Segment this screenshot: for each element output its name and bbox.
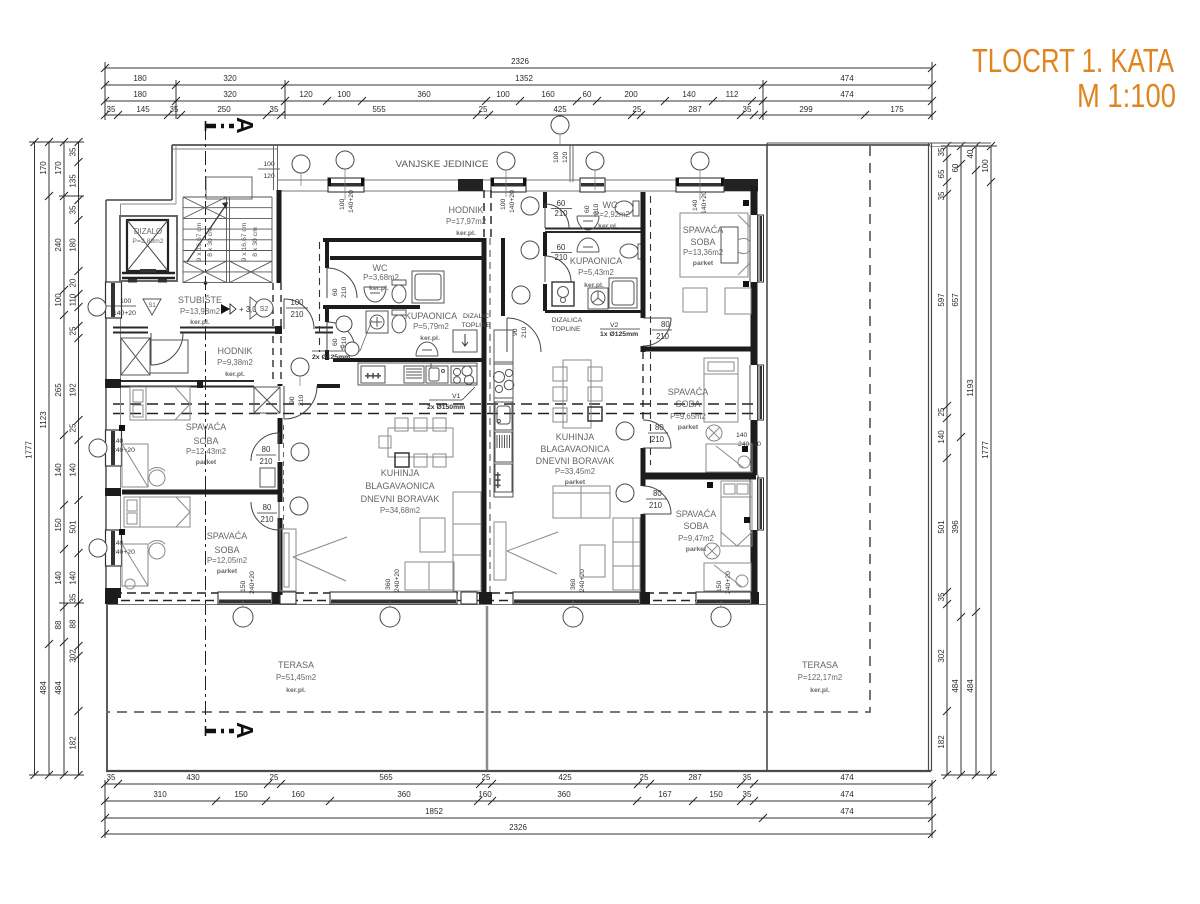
svg-text:35: 35 [69, 593, 78, 602]
svg-text:140: 140 [54, 571, 63, 585]
svg-text:ker.pl.: ker.pl. [598, 223, 618, 230]
svg-text:25: 25 [482, 773, 491, 782]
svg-text:360: 360 [557, 790, 571, 799]
svg-text:484: 484 [966, 679, 975, 693]
svg-text:150: 150 [716, 580, 723, 592]
svg-text:P=5,79m2: P=5,79m2 [413, 322, 449, 331]
svg-text:25: 25 [270, 773, 279, 782]
svg-text:180: 180 [133, 90, 147, 99]
svg-text:100: 100 [496, 90, 510, 99]
svg-text:P=13,36m2: P=13,36m2 [683, 248, 723, 257]
svg-text:425: 425 [558, 773, 572, 782]
svg-text:484: 484 [951, 679, 960, 693]
svg-text:9 x 16,67 cm: 9 x 16,67 cm [241, 222, 248, 261]
svg-text:200: 200 [624, 90, 638, 99]
svg-text:250: 250 [217, 105, 231, 114]
svg-text:S2: S2 [260, 306, 269, 313]
svg-text:210: 210 [649, 501, 663, 510]
svg-text:SPAVAĆA: SPAVAĆA [683, 225, 724, 235]
svg-text:88: 88 [69, 619, 78, 628]
svg-text:parket: parket [196, 459, 217, 466]
svg-text:150: 150 [54, 518, 63, 532]
svg-text:80: 80 [653, 489, 662, 498]
svg-text:25: 25 [633, 105, 642, 114]
svg-text:120: 120 [299, 90, 313, 99]
svg-text:P=34,68m2: P=34,68m2 [380, 506, 420, 515]
svg-text:60: 60 [951, 163, 960, 172]
svg-text:150: 150 [234, 790, 248, 799]
svg-text:SPAVAĆA: SPAVAĆA [207, 531, 248, 541]
svg-text:287: 287 [688, 105, 702, 114]
svg-text:TERASA: TERASA [278, 660, 314, 670]
svg-text:160: 160 [291, 790, 305, 799]
svg-text:80: 80 [262, 445, 271, 454]
svg-text:140: 140 [692, 199, 699, 211]
svg-text:25: 25 [937, 407, 946, 416]
svg-text:100: 100 [339, 198, 346, 210]
svg-text:40: 40 [966, 149, 975, 158]
svg-text:167: 167 [658, 790, 672, 799]
svg-text:TLOCRT 1. KATA: TLOCRT 1. KATA [972, 42, 1174, 79]
svg-text:P=5,43m2: P=5,43m2 [578, 268, 614, 277]
svg-text:287: 287 [688, 773, 702, 782]
svg-text:192: 192 [69, 383, 78, 397]
svg-text:501: 501 [937, 520, 946, 534]
svg-text:TOPLINE: TOPLINE [462, 322, 491, 329]
svg-text:140: 140 [736, 432, 748, 439]
svg-text:360: 360 [397, 790, 411, 799]
svg-text:1777: 1777 [981, 441, 990, 459]
svg-text:parket: parket [693, 260, 714, 267]
svg-text:140: 140 [937, 430, 946, 444]
svg-text:170: 170 [54, 161, 63, 175]
svg-text:140: 140 [682, 90, 696, 99]
svg-text:35: 35 [743, 773, 752, 782]
svg-text:474: 474 [840, 807, 854, 816]
svg-text:474: 474 [840, 773, 854, 782]
svg-text:320: 320 [223, 74, 237, 83]
svg-text:1352: 1352 [515, 74, 533, 83]
svg-text:100: 100 [553, 151, 560, 163]
svg-text:100: 100 [120, 298, 132, 305]
svg-text:657: 657 [951, 293, 960, 307]
svg-text:ker.pl.: ker.pl. [225, 371, 245, 378]
svg-text:80: 80 [661, 320, 670, 329]
svg-text:35: 35 [170, 105, 179, 114]
svg-text:P=9,65m2: P=9,65m2 [670, 412, 706, 421]
svg-text:140+20: 140+20 [701, 191, 708, 214]
svg-text:140+20: 140+20 [348, 190, 355, 213]
svg-text:140+20: 140+20 [509, 190, 516, 213]
svg-text:parket: parket [678, 424, 699, 431]
svg-text:BLAGAVAONICA: BLAGAVAONICA [365, 481, 434, 491]
svg-text:ker.pl.: ker.pl. [456, 230, 476, 237]
svg-text:175: 175 [890, 105, 904, 114]
svg-text:360: 360 [385, 578, 392, 590]
svg-text:240+20: 240+20 [249, 571, 256, 594]
svg-text:35: 35 [937, 191, 946, 200]
svg-text:A: A [232, 722, 258, 739]
svg-text:35: 35 [743, 790, 752, 799]
svg-text:V1: V1 [452, 393, 461, 400]
svg-text:302: 302 [69, 649, 78, 663]
svg-text:BLAGAVAONICA: BLAGAVAONICA [540, 444, 609, 454]
svg-text:182: 182 [69, 736, 78, 750]
svg-text:P=9,47m2: P=9,47m2 [678, 534, 714, 543]
svg-text:2326: 2326 [509, 823, 527, 832]
svg-text:DNEVNI BORAVAK: DNEVNI BORAVAK [536, 456, 615, 466]
svg-text:430: 430 [186, 773, 200, 782]
svg-text:474: 474 [840, 74, 854, 83]
svg-text:35: 35 [743, 105, 752, 114]
svg-text:501: 501 [69, 520, 78, 534]
svg-text:A: A [232, 117, 258, 134]
svg-text:182: 182 [937, 735, 946, 749]
svg-text:P=13,98m2: P=13,98m2 [180, 307, 220, 316]
svg-text:35: 35 [270, 105, 279, 114]
svg-text:484: 484 [54, 681, 63, 695]
svg-text:210: 210 [259, 457, 273, 466]
svg-text:100: 100 [290, 298, 304, 307]
svg-text:299: 299 [799, 105, 813, 114]
svg-text:KUHINJA: KUHINJA [556, 432, 595, 442]
svg-text:265: 265 [54, 383, 63, 397]
svg-text:240+20: 240+20 [112, 549, 135, 556]
svg-text:2x Ø125mm: 2x Ø125mm [312, 354, 350, 361]
svg-text:35: 35 [937, 147, 946, 156]
svg-text:35: 35 [937, 592, 946, 601]
svg-text:60: 60 [557, 199, 566, 208]
svg-text:210: 210 [554, 253, 568, 262]
svg-text:396: 396 [951, 520, 960, 534]
svg-text:240+20: 240+20 [112, 447, 135, 454]
svg-text:140: 140 [69, 463, 78, 477]
svg-text:KUHINJA: KUHINJA [381, 468, 420, 478]
svg-text:TERASA: TERASA [802, 660, 838, 670]
svg-text:240+20: 240+20 [394, 569, 401, 592]
svg-text:210: 210 [651, 435, 665, 444]
svg-text:P=9,38m2: P=9,38m2 [217, 358, 253, 367]
svg-text:240: 240 [54, 238, 63, 252]
svg-text:160: 160 [478, 790, 492, 799]
svg-text:+++: +++ [365, 371, 381, 381]
svg-text:360: 360 [417, 90, 431, 99]
svg-text:60: 60 [584, 205, 591, 213]
svg-text:SOBA: SOBA [675, 399, 700, 409]
svg-text:SPAVAĆA: SPAVAĆA [676, 509, 717, 519]
svg-text:DIZALO: DIZALO [134, 227, 162, 236]
svg-text:P=51,45m2: P=51,45m2 [276, 673, 316, 682]
svg-text:210: 210 [521, 326, 528, 338]
svg-text:360: 360 [570, 578, 577, 590]
svg-text:V2: V2 [610, 322, 619, 329]
svg-text:35: 35 [69, 147, 78, 156]
svg-text:60: 60 [557, 243, 566, 252]
svg-text:parket: parket [565, 479, 586, 486]
svg-text:140: 140 [69, 571, 78, 585]
svg-text:P=122,17m2: P=122,17m2 [798, 673, 842, 682]
svg-text:210: 210 [341, 286, 348, 298]
svg-text:8 x 30 cm: 8 x 30 cm [252, 227, 259, 257]
svg-text:60: 60 [583, 90, 592, 99]
svg-text:DNEVNI BORAVAK: DNEVNI BORAVAK [361, 494, 440, 504]
svg-text:9 x 16,67 cm: 9 x 16,67 cm [196, 222, 203, 261]
svg-text:20: 20 [69, 278, 78, 287]
svg-text:90: 90 [289, 396, 296, 404]
svg-text:210: 210 [554, 209, 568, 218]
svg-text:DIZALIC: DIZALIC [463, 313, 489, 320]
svg-text:320: 320 [223, 90, 237, 99]
svg-text:ker.pl.: ker.pl. [286, 687, 306, 694]
svg-text:160: 160 [541, 90, 555, 99]
svg-text:SOBA: SOBA [690, 237, 715, 247]
svg-text:2326: 2326 [511, 57, 529, 66]
svg-text:210: 210 [260, 515, 274, 524]
svg-text:SOBA: SOBA [214, 545, 239, 555]
svg-text:180: 180 [69, 238, 78, 252]
svg-text:302: 302 [937, 649, 946, 663]
svg-text:P=12,43m2: P=12,43m2 [186, 447, 226, 456]
svg-text:HODNIK: HODNIK [217, 346, 252, 356]
svg-text:597: 597 [937, 293, 946, 307]
svg-text:210: 210 [290, 310, 304, 319]
svg-text:135: 135 [69, 174, 78, 188]
svg-text:88: 88 [54, 620, 63, 629]
svg-text:145: 145 [136, 105, 150, 114]
svg-text:425: 425 [553, 105, 567, 114]
svg-text:1193: 1193 [966, 379, 975, 397]
svg-text:P=17,97m2: P=17,97m2 [446, 217, 486, 226]
svg-text:150: 150 [709, 790, 723, 799]
svg-text:WC: WC [373, 263, 388, 273]
svg-text:SOBA: SOBA [683, 521, 708, 531]
svg-text:ker.pl.: ker.pl. [190, 319, 210, 326]
svg-text:35: 35 [107, 105, 116, 114]
svg-text:35: 35 [69, 205, 78, 214]
svg-text:25: 25 [640, 773, 649, 782]
svg-text:484: 484 [39, 681, 48, 695]
svg-text:1x Ø125mm: 1x Ø125mm [600, 331, 638, 338]
svg-text:80: 80 [655, 423, 664, 432]
svg-text:100: 100 [54, 293, 63, 307]
svg-text:VANJSKE JEDINICE: VANJSKE JEDINICE [396, 159, 489, 170]
svg-text:STUBIŠTE: STUBIŠTE [178, 295, 222, 305]
svg-text:1777: 1777 [25, 441, 34, 459]
svg-text:112: 112 [726, 90, 739, 99]
svg-text:DIZALICA: DIZALICA [552, 317, 583, 324]
svg-text:140: 140 [54, 463, 63, 477]
svg-text:2x Ø150mm: 2x Ø150mm [427, 404, 465, 411]
svg-text:60: 60 [332, 288, 339, 296]
svg-text:565: 565 [379, 773, 393, 782]
svg-text:HODNIK: HODNIK [448, 205, 483, 215]
svg-text:60: 60 [332, 338, 339, 346]
svg-text:P=3,68m2: P=3,68m2 [363, 273, 399, 282]
svg-text:KUPAONICA: KUPAONICA [570, 256, 622, 266]
svg-text:80: 80 [263, 503, 272, 512]
svg-text:P=2,88m2: P=2,88m2 [132, 238, 163, 245]
svg-text:100: 100 [981, 159, 990, 173]
svg-text:TOPLINE: TOPLINE [552, 326, 581, 333]
svg-text:474: 474 [840, 90, 854, 99]
svg-text:SPAVAĆA: SPAVAĆA [668, 387, 709, 397]
svg-text:210: 210 [656, 332, 670, 341]
svg-text:110: 110 [69, 293, 78, 306]
svg-text:ker.pl.: ker.pl. [810, 687, 830, 694]
svg-text:140+20: 140+20 [113, 310, 136, 317]
svg-text:SPAVAĆA: SPAVAĆA [186, 422, 227, 432]
svg-text:180: 180 [133, 74, 147, 83]
svg-text:170: 170 [39, 161, 48, 175]
svg-text:P=33,45m2: P=33,45m2 [555, 467, 595, 476]
svg-text:150: 150 [240, 580, 247, 592]
svg-text:parket: parket [217, 568, 238, 575]
svg-text:SOBA: SOBA [193, 436, 218, 446]
svg-text:P=12,05m2: P=12,05m2 [207, 556, 247, 565]
svg-text:65: 65 [937, 169, 946, 178]
svg-text:1123: 1123 [39, 411, 48, 429]
svg-text:25: 25 [69, 326, 78, 335]
svg-text:1852: 1852 [425, 807, 443, 816]
svg-text:8 x 30 cm: 8 x 30 cm [207, 227, 214, 257]
svg-text:474: 474 [840, 790, 854, 799]
svg-text:25: 25 [479, 105, 488, 114]
svg-text:100: 100 [337, 90, 351, 99]
svg-text:S1: S1 [148, 303, 156, 309]
svg-text:210: 210 [298, 394, 305, 406]
svg-text:ker.pl.: ker.pl. [420, 335, 440, 342]
svg-text:M 1:100: M 1:100 [1077, 77, 1176, 114]
svg-text:KUPAONICA: KUPAONICA [405, 311, 457, 321]
svg-text:25: 25 [69, 423, 78, 432]
svg-text:555: 555 [372, 105, 386, 114]
svg-text:310: 310 [153, 790, 167, 799]
svg-text:100: 100 [500, 198, 507, 210]
svg-text:35: 35 [107, 773, 116, 782]
svg-text:120: 120 [562, 151, 569, 163]
svg-text:+++: +++ [493, 472, 503, 488]
